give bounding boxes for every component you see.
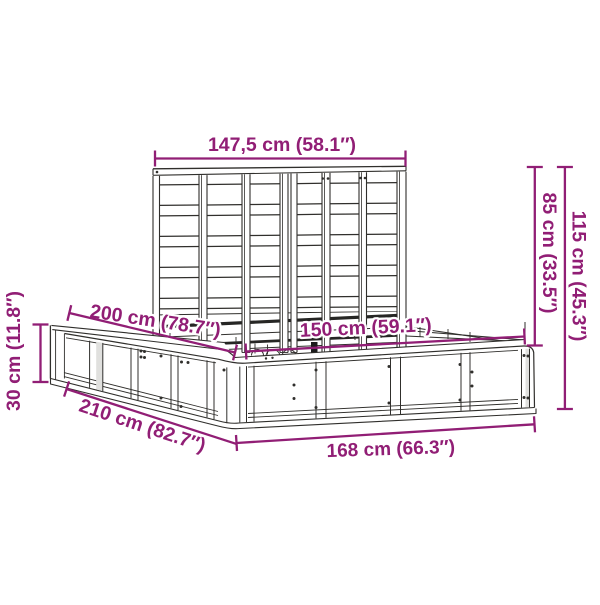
- svg-text:147,5 cm (58.1″): 147,5 cm (58.1″): [208, 134, 356, 156]
- svg-text:115 cm (45.3″): 115 cm (45.3″): [568, 211, 590, 342]
- svg-text:85 cm (33.5″): 85 cm (33.5″): [538, 193, 560, 314]
- svg-text:168 cm (66.3″): 168 cm (66.3″): [326, 437, 455, 462]
- svg-text:30 cm (11.8″): 30 cm (11.8″): [3, 291, 25, 411]
